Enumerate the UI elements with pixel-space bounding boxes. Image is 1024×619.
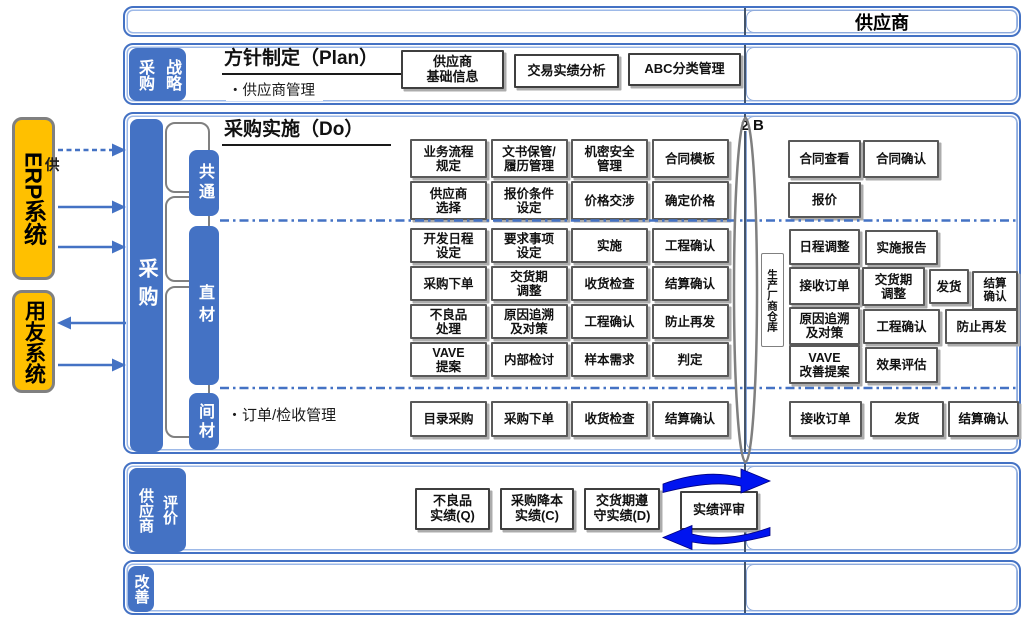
strategy-label: 采购 战略 bbox=[129, 48, 186, 101]
procurement-process-diagram: 供应商 采购 战略 方针制定（Plan） ・供应商管理 供应商 基础信息 交易实… bbox=[0, 0, 1024, 619]
process-box: 样本需求 bbox=[571, 342, 648, 377]
yonyou-system-label: 用友系统 bbox=[19, 300, 49, 384]
process-box: 判定 bbox=[652, 342, 729, 377]
plan-heading: 方针制定（Plan） bbox=[222, 48, 406, 75]
process-box: VAVE 提案 bbox=[410, 342, 487, 377]
procurement-bar-label: 采购 bbox=[132, 258, 161, 314]
evaluation-label: 供应商 评价 bbox=[129, 468, 186, 552]
review-box: 实绩评审 bbox=[680, 491, 758, 530]
strategy-supplier-cell bbox=[746, 47, 1018, 101]
process-box: 结算确认 bbox=[948, 401, 1019, 437]
band-strategy: 采购 战略 方针制定（Plan） ・供应商管理 供应商 基础信息 交易实绩分析 … bbox=[123, 43, 1021, 105]
process-box: 不良品 处理 bbox=[410, 304, 487, 339]
process-box: 原因追溯 及对策 bbox=[789, 307, 860, 345]
process-box: 结算 确认 bbox=[972, 271, 1018, 310]
process-box: ABC分类管理 bbox=[628, 53, 741, 86]
process-box: 合同确认 bbox=[863, 140, 939, 178]
strategy-label-col1: 采购 bbox=[132, 59, 156, 91]
process-box: 供应商 基础信息 bbox=[401, 50, 504, 89]
process-box: 工程确认 bbox=[863, 309, 940, 344]
evaluation-supplier-cell bbox=[746, 466, 1018, 550]
band-procurement: 采购 共通 直材 间材 采购实施（Do） 业务流程 规定 文书保管/ 履历管理 … bbox=[123, 112, 1021, 454]
process-box: VAVE 改善提案 bbox=[789, 345, 860, 384]
plan-subheading: ・供应商管理 bbox=[226, 78, 323, 101]
improvement-label: 改善 bbox=[128, 566, 154, 612]
process-box: 要求事项 设定 bbox=[491, 228, 568, 263]
improvement-label-text: 改善 bbox=[131, 574, 152, 604]
process-box: 交货期遵 守实绩(D) bbox=[584, 488, 660, 530]
process-box: 报价条件 设定 bbox=[491, 181, 568, 220]
process-box: 目录采购 bbox=[410, 401, 487, 437]
process-box: 结算确认 bbox=[652, 266, 729, 301]
indirect-grid: 目录采购 采购下单 收货检查 结算确认 bbox=[410, 401, 729, 437]
process-box: 交易实绩分析 bbox=[514, 54, 619, 88]
indirect-note: ・订单/检收管理 bbox=[225, 403, 344, 426]
partial-arrow-label: 供 bbox=[45, 154, 60, 175]
process-box: 接收订单 bbox=[789, 401, 862, 437]
yonyou-return-arrow-head bbox=[57, 317, 71, 330]
improvement-supplier-cell bbox=[746, 564, 1018, 611]
band-top-bar: 供应商 bbox=[123, 6, 1021, 37]
process-box: 防止再发 bbox=[945, 309, 1018, 344]
process-box: 发货 bbox=[929, 269, 969, 304]
process-box: 文书保管/ 履历管理 bbox=[491, 139, 568, 178]
process-box: 采购下单 bbox=[410, 266, 487, 301]
process-box: 价格交涉 bbox=[571, 181, 648, 220]
warehouse-label: 生产厂商仓库 bbox=[761, 253, 784, 347]
supplier-header-cell: 供应商 bbox=[746, 10, 1018, 33]
process-box: 原因追溯 及对策 bbox=[491, 304, 568, 339]
process-box: 合同查看 bbox=[788, 140, 861, 178]
supplier-title: 供应商 bbox=[855, 9, 909, 35]
band-improvement: 改善 bbox=[123, 560, 1021, 615]
process-box: 交货期 调整 bbox=[491, 266, 568, 301]
process-box: 确定价格 bbox=[652, 181, 729, 220]
strategy-label-col2: 战略 bbox=[159, 59, 183, 91]
process-box: 采购下单 bbox=[491, 401, 568, 437]
warehouse-label-text: 生产厂商仓库 bbox=[765, 269, 780, 332]
evaluation-label-col1: 供应商 bbox=[135, 488, 156, 533]
group-label-indirect: 间材 bbox=[189, 393, 219, 450]
process-box: 发货 bbox=[870, 401, 944, 437]
do-heading: 采购实施（Do） bbox=[222, 119, 391, 146]
process-box: 报价 bbox=[788, 182, 861, 218]
direct-grid: 开发日程 设定 要求事项 设定 实施 工程确认 采购下单 交货期 调整 收货检查… bbox=[410, 228, 729, 377]
evaluation-label-col2: 评价 bbox=[159, 495, 180, 525]
process-box: 实施报告 bbox=[865, 230, 938, 265]
connector-marker-prefix: 2 bbox=[741, 117, 749, 133]
group-label-direct-text: 直材 bbox=[192, 284, 216, 328]
process-box: 供应商 选择 bbox=[410, 181, 487, 220]
process-box: 防止再发 bbox=[652, 304, 729, 339]
process-box: 收货检查 bbox=[571, 266, 648, 301]
process-box: 工程确认 bbox=[652, 228, 729, 263]
yonyou-system-box: 用友系统 bbox=[12, 290, 55, 393]
process-box: 工程确认 bbox=[571, 304, 648, 339]
erp-system-box: ERP系统 bbox=[12, 117, 55, 280]
process-box: 接收订单 bbox=[789, 267, 860, 305]
process-box: 业务流程 规定 bbox=[410, 139, 487, 178]
process-box: 内部检讨 bbox=[491, 342, 568, 377]
group-label-common-text: 共通 bbox=[192, 163, 216, 203]
connector-marker-b: B bbox=[753, 117, 764, 134]
common-grid: 业务流程 规定 文书保管/ 履历管理 机密安全 管理 合同模板 供应商 选择 报… bbox=[410, 139, 729, 220]
process-box: 日程调整 bbox=[789, 229, 860, 265]
process-box: 交货期 调整 bbox=[862, 267, 925, 306]
process-box: 开发日程 设定 bbox=[410, 228, 487, 263]
process-box: 采购降本 实绩(C) bbox=[500, 488, 574, 530]
process-box: 效果评估 bbox=[865, 347, 938, 383]
band-evaluation: 供应商 评价 不良品 实绩(Q) 采购降本 实绩(C) 交货期遵 守实绩(D) … bbox=[123, 462, 1021, 554]
group-label-direct: 直材 bbox=[189, 226, 219, 385]
group-label-indirect-text: 间材 bbox=[192, 403, 216, 441]
process-box: 不良品 实绩(Q) bbox=[415, 488, 490, 530]
procurement-bar: 采购 bbox=[130, 119, 163, 452]
process-box: 机密安全 管理 bbox=[571, 139, 648, 178]
group-label-common: 共通 bbox=[189, 150, 219, 216]
process-box: 实施 bbox=[571, 228, 648, 263]
process-box: 合同模板 bbox=[652, 139, 729, 178]
process-box: 结算确认 bbox=[652, 401, 729, 437]
process-box: 收货检查 bbox=[571, 401, 648, 437]
